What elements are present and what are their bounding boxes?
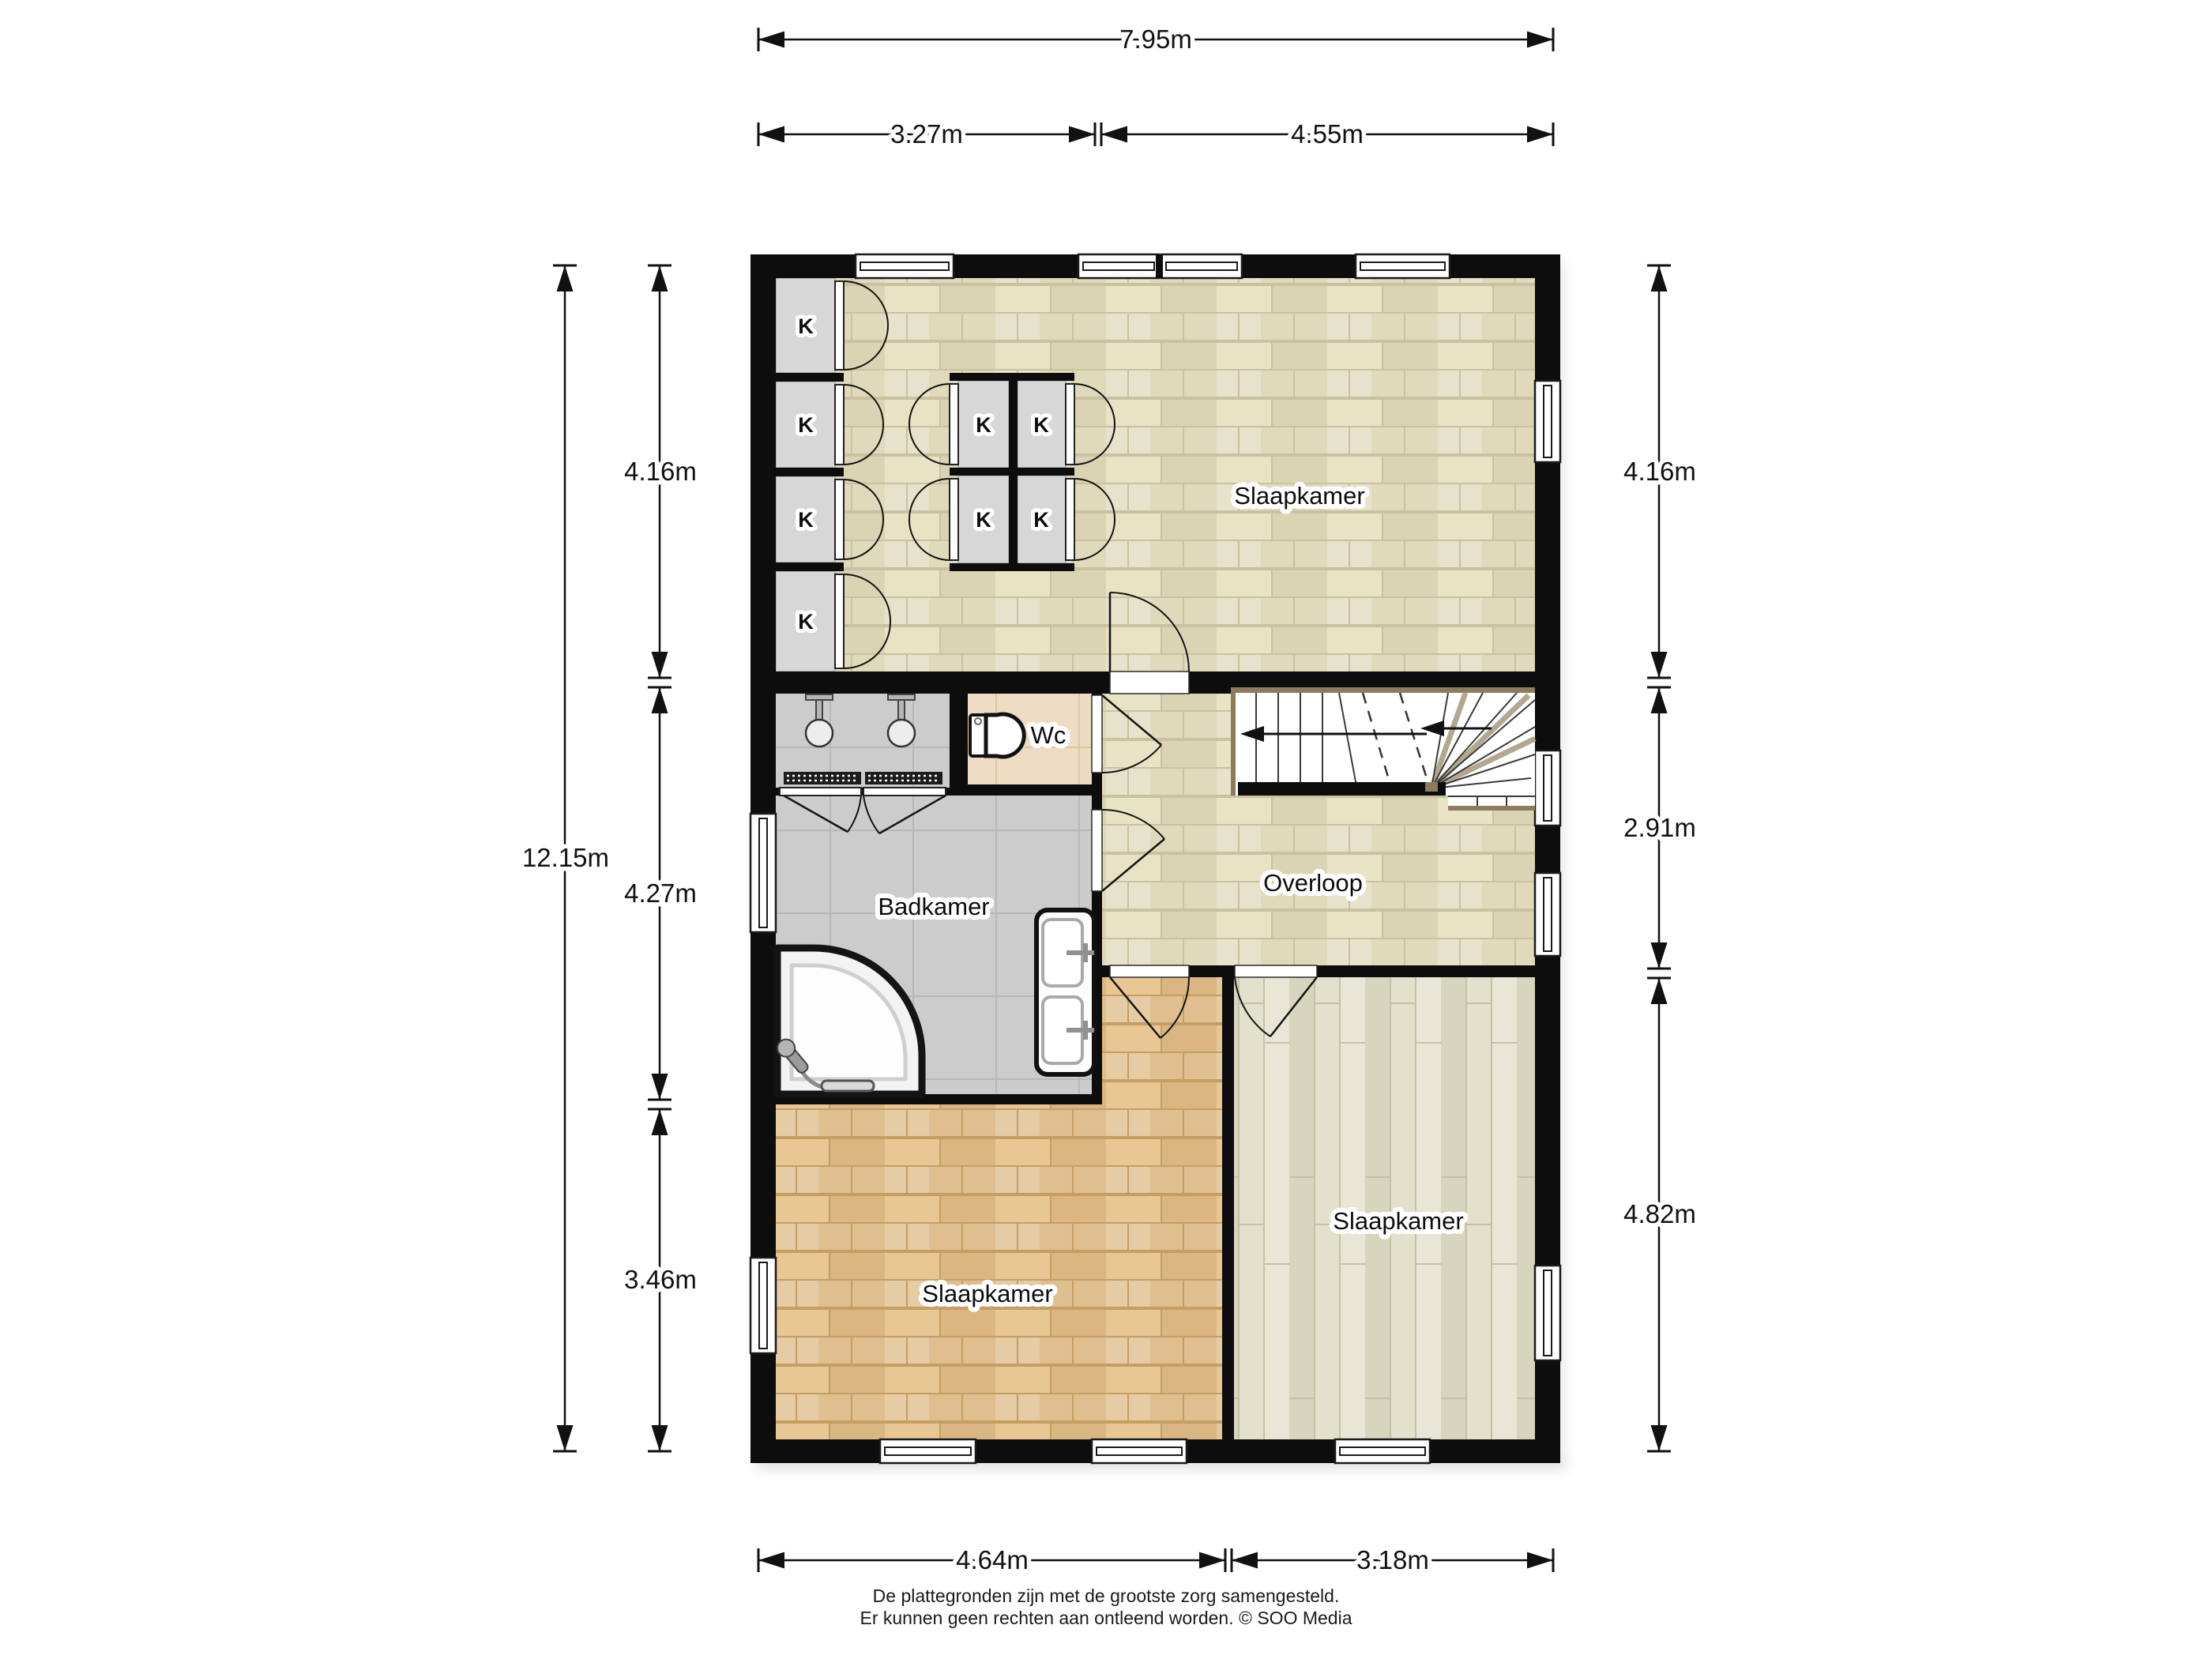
- window: [1535, 750, 1560, 826]
- window: [880, 1439, 976, 1463]
- dimension-label: 4.27m: [624, 878, 697, 908]
- room-label-landing: Overloop: [1263, 869, 1363, 897]
- window: [856, 254, 954, 278]
- window: [1535, 1266, 1560, 1360]
- dimension-label: 3.27m: [890, 119, 963, 149]
- dimension-label: 4.82m: [1623, 1199, 1696, 1228]
- floor-plan-canvas: Slaapkamer Overloop Badkamer Wc Slaapkam…: [0, 0, 2212, 1659]
- closet-label: K: [976, 508, 991, 532]
- closet-label: K: [1033, 508, 1049, 532]
- room-label-bathroom: Badkamer: [878, 893, 989, 920]
- dimension-label: 3.46m: [624, 1265, 697, 1294]
- footer-disclaimer-line1: De plattegronden zijn met de grootste zo…: [873, 1586, 1340, 1606]
- dimension-label: 4.16m: [1623, 457, 1696, 486]
- dimension-label: 3.18m: [1356, 1545, 1429, 1574]
- dimension-label: 12.15m: [522, 843, 609, 872]
- wall-closet-block-bottom: [950, 563, 1074, 571]
- wall-closet-block-top: [950, 373, 1074, 381]
- dimension-label: 4.64m: [956, 1545, 1029, 1574]
- wall-toilet-south: [950, 784, 1092, 796]
- closet-label: K: [976, 413, 991, 437]
- dimension-label: 4.55m: [1291, 119, 1364, 149]
- closet-label: K: [798, 413, 814, 437]
- floorplan-page: Slaapkamer Overloop Badkamer Wc Slaapkam…: [0, 0, 2212, 1659]
- window: [750, 814, 776, 932]
- wall-toilet-west: [950, 694, 968, 796]
- closet-label: K: [798, 508, 814, 532]
- wall-closet-divider: [776, 373, 844, 382]
- stair-newel: [1425, 782, 1438, 792]
- stair-entry: [1448, 796, 1535, 807]
- room-floors: [776, 278, 1535, 1439]
- window: [1535, 381, 1560, 462]
- dimension-label: 2.91m: [1623, 813, 1696, 842]
- closet-label: K: [798, 314, 814, 338]
- wall-closet-divider: [776, 562, 844, 571]
- window: [1161, 254, 1242, 278]
- room-label-toilet: Wc: [1031, 721, 1066, 749]
- window: [750, 1258, 776, 1353]
- dimension-label: 4.16m: [624, 457, 697, 486]
- wall-closet-block-center: [1009, 381, 1018, 563]
- double-sink-icon: [1036, 910, 1094, 1074]
- staircase: [1231, 687, 1535, 811]
- footer-disclaimer-line2: Er kunnen geen rechten aan ontleend word…: [860, 1608, 1352, 1628]
- window: [1078, 254, 1159, 278]
- wall-closet-divider: [776, 468, 844, 476]
- window-mullion: [1156, 254, 1163, 278]
- wall-bedroom-divider: [1222, 977, 1234, 1439]
- stair-wall: [1238, 782, 1446, 796]
- window: [1335, 1439, 1430, 1463]
- room-label-bedroom-top: Slaapkamer: [1234, 482, 1364, 510]
- toilet-icon: [970, 714, 1024, 757]
- radiator-icon: [784, 772, 861, 784]
- stair-trim-top: [1231, 687, 1535, 693]
- radiator-icon: [865, 772, 942, 784]
- closet-label: K: [798, 610, 814, 634]
- room-label-bedroom-bottom-left: Slaapkamer: [922, 1280, 1052, 1307]
- window: [1092, 1439, 1187, 1463]
- closet-label: K: [1033, 413, 1049, 437]
- stair-well: [1231, 690, 1535, 796]
- dimension-label: 7.95m: [1119, 24, 1192, 54]
- footer: De plattegronden zijn met de grootste zo…: [860, 1586, 1352, 1628]
- window: [1535, 873, 1560, 956]
- window: [1356, 254, 1450, 278]
- stair-trim-left: [1231, 687, 1236, 796]
- room-label-bedroom-bottom-right: Slaapkamer: [1333, 1207, 1463, 1235]
